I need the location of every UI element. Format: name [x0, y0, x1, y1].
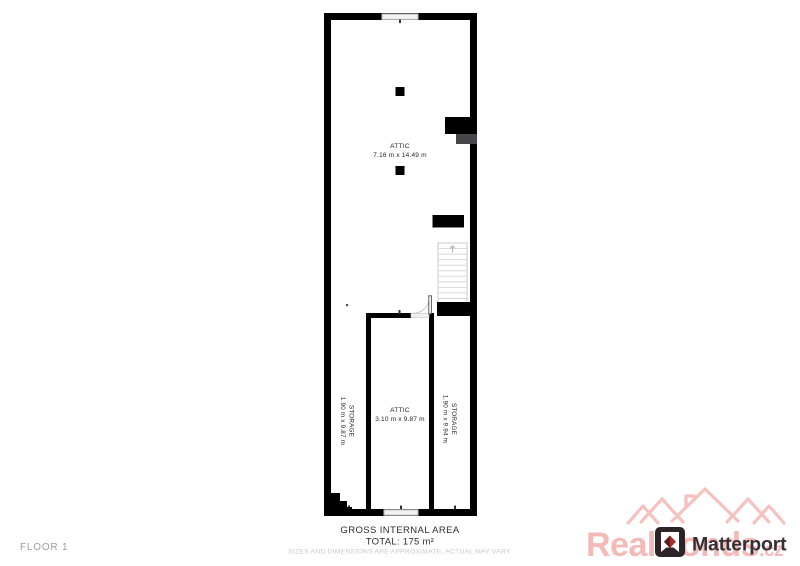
watermark-roofs-icon [628, 489, 784, 523]
window-top [382, 14, 418, 19]
gross-area-total: TOTAL: 175 m² [366, 537, 434, 548]
wall-tick [399, 20, 401, 24]
door-arc [413, 296, 431, 314]
wall-tick [399, 310, 401, 314]
post-marker [396, 166, 405, 175]
svg-text:STORAGE: STORAGE [348, 405, 355, 437]
window-bottom [384, 510, 418, 515]
door-threshold [411, 314, 429, 318]
svg-text:1.90 m x 9.87 m: 1.90 m x 9.87 m [339, 397, 346, 445]
column-dot [346, 304, 348, 306]
wall-tick [454, 506, 456, 510]
svg-text:STORAGE: STORAGE [450, 403, 457, 435]
outer-wall-left [324, 13, 331, 516]
post-marker [396, 87, 405, 96]
outer-wall-right [470, 13, 477, 516]
room-dims-attic-main: 7.16 m x 14.49 m [373, 152, 426, 159]
wall-tick [400, 506, 402, 510]
room-dims-attic-lower: 3.10 m x 9.87 m [375, 416, 425, 423]
floor-label: FLOOR 1 [20, 542, 68, 553]
floor-plan: ATTIC 7.16 m x 14.49 m ATTIC 3.10 m x 9.… [0, 0, 800, 566]
stair-head-wall [433, 215, 465, 228]
disclaimer: SIZES AND DIMENSIONS ARE APPROXIMATE, AC… [288, 549, 512, 556]
door [411, 296, 431, 318]
room-label-attic-main: ATTIC [390, 143, 410, 150]
svg-text:1.90 m x 9.94 m: 1.90 m x 9.94 m [442, 395, 449, 443]
staircase [438, 243, 467, 304]
floor-plan-page: ATTIC 7.16 m x 14.49 m ATTIC 3.10 m x 9.… [0, 0, 800, 566]
corner-steps [331, 493, 352, 510]
matterport-logo-icon [655, 527, 685, 557]
door-leaf [429, 296, 432, 314]
matterport-wordmark: Matterport [692, 534, 787, 556]
chimney [445, 117, 477, 144]
room-label-attic-lower: ATTIC [390, 407, 410, 414]
stair-foot-wall [437, 302, 477, 316]
room-label-storage-right: STORAGE 1.90 m x 9.94 m [442, 395, 458, 443]
room-label-storage-left: STORAGE 1.90 m x 9.87 m [339, 397, 355, 445]
gross-area-title: GROSS INTERNAL AREA [340, 525, 459, 536]
